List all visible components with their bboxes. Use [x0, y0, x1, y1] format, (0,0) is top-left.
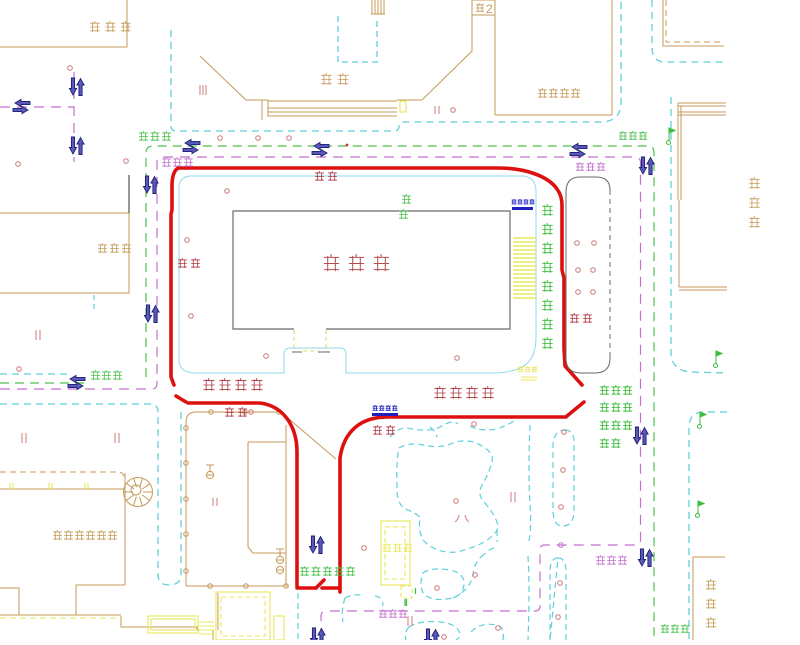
svg-text:2: 2 — [486, 2, 493, 16]
